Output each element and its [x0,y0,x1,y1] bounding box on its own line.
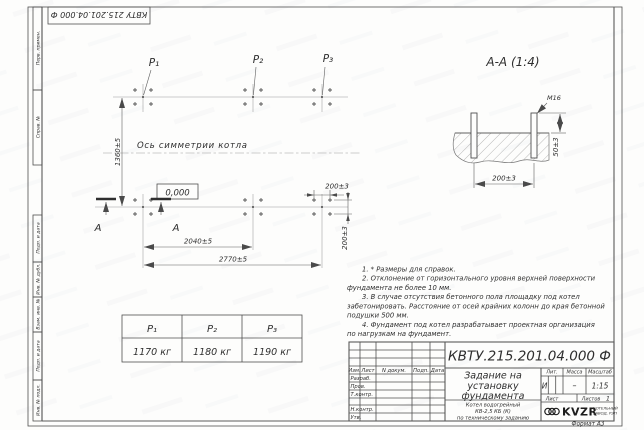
note-line: по нагрузкам на фундамент. [347,330,451,338]
dim-1360: 1360±5 [114,137,122,166]
load-table-header-p2: P₂ [207,324,217,335]
boiler-symmetry-axis-label: Ось симметрии котла [137,141,248,151]
tb-doc-number: КВТУ.215.201.04.000 Ф [448,349,611,365]
tb-row-utv: Утв. [351,415,362,421]
margin-field-podp-data-2: Подп. и дата [35,340,41,371]
load-table-value-p2: 1180 кг [193,347,232,358]
note-line: 4. Фундамент под котел разрабатывает про… [362,321,595,329]
tb-title-line: фундамента [462,391,525,402]
technical-notes: 1. * Размеры для справок. 2. Отклонение … [347,266,605,339]
tb-lit-value: И [542,382,548,391]
logo-sub2: ЗАВОД, РЭП [593,411,617,416]
load-label-p3: P₃ [323,53,334,65]
anchor-bolt-left [471,113,477,158]
tb-mass-value: – [573,381,577,390]
drawing-sheet: Перв. примен. Справ. № Подп. и дата Инв.… [0,0,644,430]
tb-title-line: Задание на [464,371,522,382]
tb-row-razrab: Разраб. [351,376,371,382]
section-title: А-А (1:4) [485,55,539,69]
load-table-value-p1: 1170 кг [133,347,172,358]
tb-mass-label: Масса [567,370,583,376]
note-line: подушки 500 мм. [347,312,409,320]
section-letter-right: А [172,223,180,234]
top-stamp-number: КВТУ 215.201.04.000 Ф [51,10,148,19]
format-label: Формат А3 [571,422,604,428]
tb-product-line: Котел водогрейный [466,403,521,409]
level-mark-value: 0,000 [165,189,189,199]
tb-sheets-value: 1 [606,395,610,403]
tb-col-podp: Подп. [413,368,429,374]
tb-scale-value: 1:15 [592,382,609,391]
drawing-canvas: Перв. примен. Справ. № Подп. и дата Инв.… [0,0,644,430]
note-line: 2. Отклонение от горизонтального уровня … [362,275,596,283]
margin-field-sprav-n: Справ. № [35,116,41,139]
load-table-header-p3: P₃ [267,324,277,335]
dim-2770: 2770±5 [219,256,248,264]
thread-label-m16: М16 [547,94,561,102]
note-line: 1. * Размеры для справок. [362,266,456,274]
tb-col-izm: Изм. [348,368,360,374]
section-letter-left: А [94,223,102,234]
margin-field-perv-primen: Перв. примен. [35,31,41,66]
margin-field-inv-dubl: Инв. № дубл. [35,263,41,294]
tb-sheet-label: Лист [545,396,560,402]
anchor-bolt-right [531,113,537,158]
note-line: забетонировать. Расстояние от осей крайн… [347,302,605,310]
tb-col-data: Дата [430,368,444,374]
dim-bolt-spacing-section: 200±3 [492,175,516,183]
margin-field-vzam-inv: Взам. инв. № [35,298,41,329]
note-line: 3. В случае отсутствия бетонного пола пл… [362,293,580,301]
tb-lit-label: Лит. [545,370,558,376]
margin-field-inv-podl: Инв. № подл. [35,384,41,416]
dim-bolt-protrusion: 50±3 [552,137,560,156]
tb-scale-label: Масштаб [588,370,612,376]
tb-product-line: по техническому заданию [457,416,530,422]
margin-field-podp-data-1: Подп. и дата [35,222,41,253]
tb-row-prov: Пров. [351,384,366,390]
note-line: фундамента не более 10 мм. [347,284,451,292]
tb-col-ndokum: N докум. [382,368,406,374]
tb-row-tkontr: Т.контр. [351,392,373,398]
tb-col-list: Лист [360,368,375,374]
dim-bolt-pitch-y: 200±3 [341,226,349,250]
load-table-header-p1: P₁ [147,324,157,335]
load-label-p1: P₁ [149,57,160,69]
tb-product-line: КВ-2,5 КБ (К) [475,409,511,415]
tb-row-nkontr: Н.контр. [351,407,374,413]
load-table-value-p3: 1190 кг [253,347,292,358]
dim-2040: 2040±5 [184,238,213,246]
dim-bolt-pitch-x: 200±3 [325,183,349,191]
tb-sheets-label: Листов [581,396,601,402]
load-label-p2: P₂ [253,54,264,66]
